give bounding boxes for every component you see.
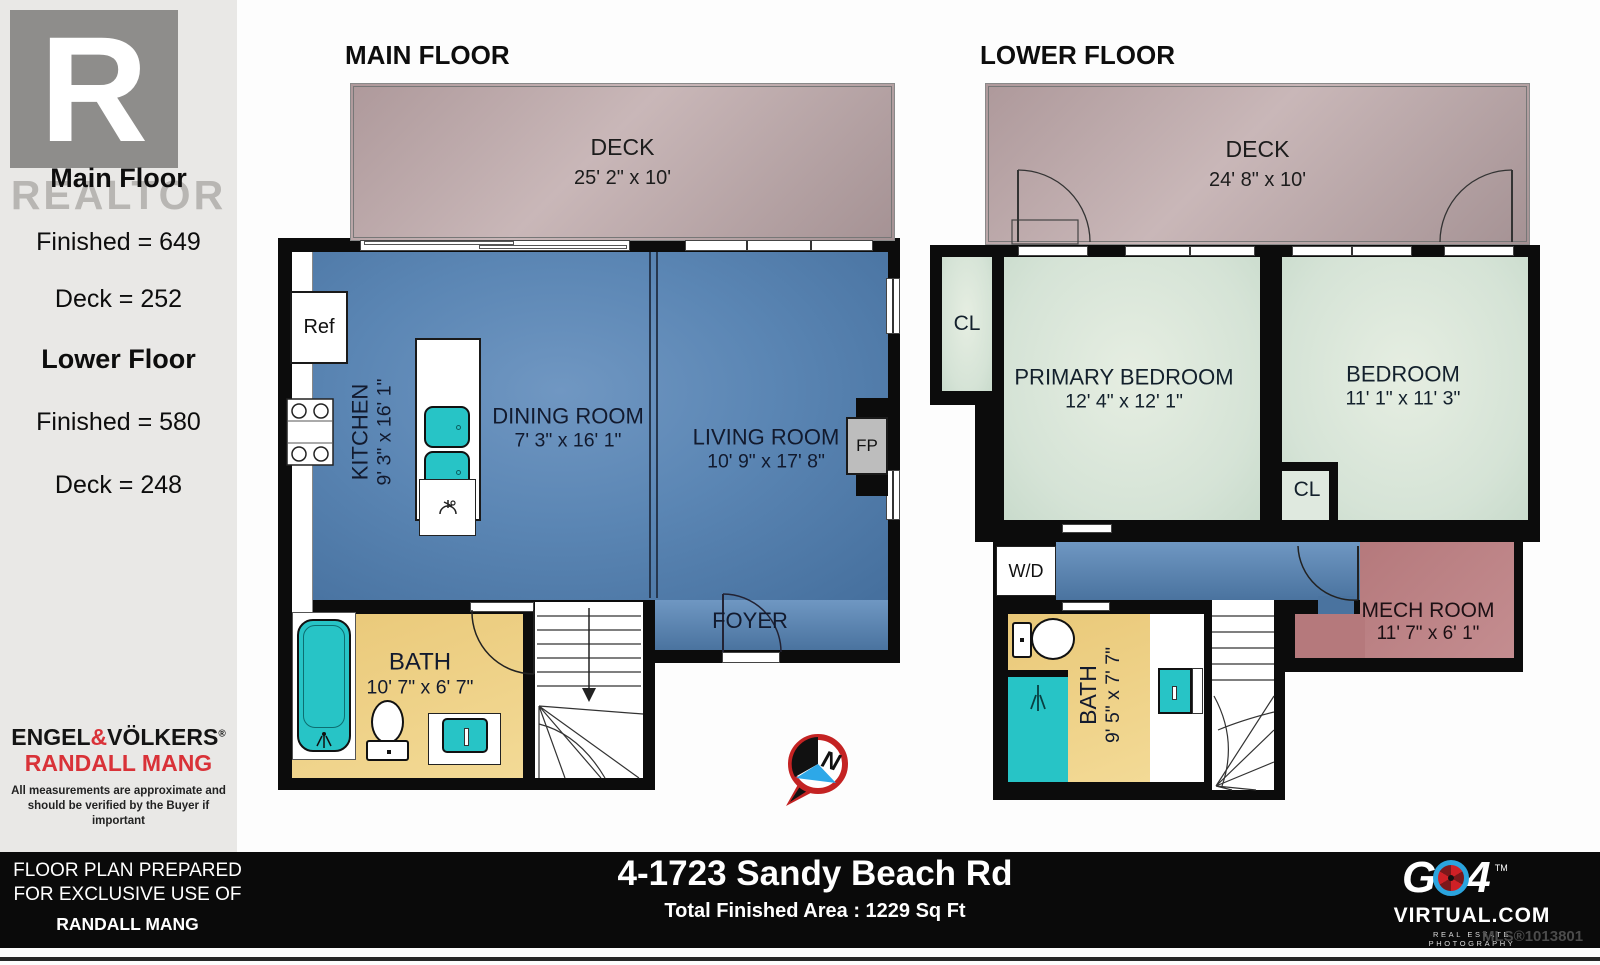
lower-door-gap-right bbox=[1444, 246, 1514, 256]
lower-bath-name: BATH bbox=[1075, 647, 1102, 743]
toilet-flush-dot bbox=[387, 750, 391, 754]
mech-door-swing bbox=[1296, 544, 1360, 602]
shower bbox=[1008, 670, 1068, 782]
main-bath-dims: 10' 7" x 6' 7" bbox=[367, 677, 474, 700]
lower-bath-label: BATH 9' 5" x 7' 7" bbox=[1075, 647, 1125, 743]
toilet-bowl bbox=[371, 700, 404, 744]
window-mullion bbox=[810, 241, 812, 250]
railing-line bbox=[649, 252, 651, 598]
toilet-tank-lower bbox=[1012, 622, 1032, 658]
main-deck: DECK 25' 2" x 10' bbox=[350, 83, 895, 241]
sliding-door bbox=[360, 240, 630, 251]
sidebar-main-finished: Finished = 649 bbox=[0, 228, 237, 257]
main-bath-name: BATH bbox=[367, 649, 474, 677]
living-window bbox=[886, 278, 900, 334]
main-bath-label: BATH 10' 7" x 6' 7" bbox=[367, 649, 474, 700]
window-mullion bbox=[1351, 247, 1353, 255]
camera-aperture-icon bbox=[1433, 860, 1469, 896]
realtor-logo-icon: R bbox=[10, 10, 178, 168]
kitchen-label: KITCHEN 9' 3" x 16' 1" bbox=[348, 379, 397, 486]
main-floor-title: MAIN FLOOR bbox=[345, 40, 510, 71]
brokerage-part2: VÖLKERS bbox=[107, 724, 218, 750]
sidebar-main-floor-title: Main Floor bbox=[0, 163, 237, 194]
lower-window bbox=[1292, 246, 1412, 256]
window-mullion bbox=[892, 279, 894, 333]
primary-bedroom-name: PRIMARY BEDROOM bbox=[1014, 365, 1233, 391]
sink-fixture bbox=[464, 728, 469, 746]
mech-room-name: MECH ROOM bbox=[1362, 599, 1495, 623]
living-room-dims: 10' 9" x 17' 8" bbox=[693, 451, 840, 474]
vanity-sink bbox=[442, 718, 488, 753]
fireplace-label: FP bbox=[856, 436, 878, 456]
sink-drain bbox=[456, 425, 461, 430]
go4-brand: G 4 TM bbox=[1402, 856, 1508, 900]
brokerage-part1: ENGEL bbox=[11, 724, 90, 750]
brokerage-name: ENGEL&VÖLKERS® bbox=[0, 724, 237, 751]
north-compass-icon: N bbox=[778, 726, 854, 808]
bottom-border bbox=[0, 957, 1600, 961]
main-deck-name: DECK bbox=[591, 134, 655, 161]
kitchen-dims: 9' 3" x 16' 1" bbox=[374, 379, 397, 486]
living-window bbox=[886, 470, 900, 520]
lower-deck-door-right bbox=[1434, 168, 1518, 246]
go4-letter-g: G bbox=[1402, 856, 1436, 900]
refrigerator: Ref bbox=[290, 291, 348, 364]
dining-room-name: DINING ROOM bbox=[492, 404, 644, 430]
mech-room-dims: 11' 7" x 6' 1" bbox=[1362, 623, 1495, 645]
go4-letter-4: 4 bbox=[1466, 856, 1490, 900]
bedroom-door-opening bbox=[1062, 524, 1112, 533]
floorplan-canvas: R REALTOR Main Floor Finished = 649 Deck… bbox=[0, 0, 1600, 965]
closet2-label: CL bbox=[1282, 478, 1332, 502]
realtor-logo-letter: R bbox=[40, 14, 148, 164]
lower-floor-title: LOWER FLOOR bbox=[980, 40, 1175, 71]
fireplace: FP bbox=[846, 417, 888, 475]
lower-deck-door-left bbox=[1012, 168, 1096, 246]
lower-deck-dims: 24' 8" x 10' bbox=[1209, 169, 1306, 192]
foyer-name: FOYER bbox=[712, 608, 788, 634]
bathtub-inner bbox=[303, 625, 345, 728]
sidebar-main-deck: Deck = 252 bbox=[0, 285, 237, 314]
window-mullion bbox=[892, 471, 894, 519]
trademark-label: TM bbox=[1495, 863, 1508, 873]
sidebar-lower-floor-title: Lower Floor bbox=[0, 344, 237, 375]
toilet-tank bbox=[366, 740, 409, 761]
prepared-line2: FOR EXCLUSIVE USE OF bbox=[10, 884, 245, 906]
mech-room-label: MECH ROOM 11' 7" x 6' 1" bbox=[1362, 599, 1495, 645]
faucet-icon bbox=[436, 496, 460, 520]
total-area: Total Finished Area : 1229 Sq Ft bbox=[240, 900, 1390, 923]
closet1-label: CL bbox=[942, 312, 992, 336]
kitchen-name: KITCHEN bbox=[348, 379, 374, 486]
window-mullion bbox=[1189, 247, 1191, 255]
sink-fixture bbox=[1172, 686, 1177, 700]
stove-icon bbox=[286, 398, 334, 466]
prepared-line1: FLOOR PLAN PREPARED bbox=[10, 860, 245, 882]
mls-number: MLS®1013801 bbox=[1482, 928, 1583, 945]
bedroom-name: BEDROOM bbox=[1346, 362, 1461, 388]
sidebar-lower-finished: Finished = 580 bbox=[0, 408, 237, 437]
primary-bedroom-dims: 12' 4" x 12' 1" bbox=[1014, 391, 1233, 414]
brokerage-reg-mark: ® bbox=[218, 728, 225, 739]
sidebar-lower-deck: Deck = 248 bbox=[0, 471, 237, 500]
disclaimer: All measurements are approximate and sho… bbox=[0, 784, 237, 829]
disclaimer-line2: should be verified by the Buyer if impor… bbox=[0, 799, 237, 829]
disclaimer-line1: All measurements are approximate and bbox=[0, 784, 237, 799]
main-deck-dims: 25' 2" x 10' bbox=[574, 167, 671, 190]
mech-room-ext bbox=[1295, 614, 1365, 658]
bedroom-dims: 11' 1" x 11' 3" bbox=[1346, 388, 1461, 411]
lower-door-gap-left bbox=[1018, 246, 1088, 256]
lower-window bbox=[1125, 246, 1255, 256]
brokerage-ampersand: & bbox=[91, 724, 108, 750]
main-window bbox=[685, 240, 873, 251]
lower-bath-dims: 9' 5" x 7' 7" bbox=[1102, 647, 1125, 743]
bedroom-label: BEDROOM 11' 1" x 11' 3" bbox=[1346, 362, 1461, 411]
vanity-counter bbox=[1192, 668, 1203, 714]
tub-faucet-icon bbox=[313, 730, 335, 748]
address: 4-1723 Sandy Beach Rd bbox=[240, 854, 1390, 894]
kitchen-sink bbox=[424, 406, 470, 448]
foyer-label: FOYER bbox=[712, 608, 788, 634]
bath-door-swing bbox=[470, 608, 538, 678]
dining-room-dims: 7' 3" x 16' 1" bbox=[492, 430, 644, 453]
sink-drain bbox=[456, 470, 461, 475]
lower-vanity-sink bbox=[1158, 668, 1192, 714]
main-stairs bbox=[535, 602, 643, 778]
virtual-com-label: VIRTUAL.COM bbox=[1392, 904, 1552, 928]
sidebar: R REALTOR Main Floor Finished = 649 Deck… bbox=[0, 0, 237, 852]
prepared-name: RANDALL MANG bbox=[10, 914, 245, 935]
sliding-door-panel bbox=[479, 245, 627, 249]
window-mullion bbox=[746, 241, 748, 250]
lower-stairs bbox=[1212, 600, 1274, 790]
lower-deck-name: DECK bbox=[1226, 136, 1290, 163]
toilet-flush-dot bbox=[1020, 638, 1024, 642]
brokerage-agent: RANDALL MANG bbox=[0, 750, 237, 777]
refrigerator-label: Ref bbox=[303, 316, 334, 339]
washer-dryer: W/D bbox=[996, 546, 1056, 596]
shower-head-icon bbox=[1026, 683, 1050, 711]
living-room-label: LIVING ROOM 10' 9" x 17' 8" bbox=[693, 425, 840, 474]
bathtub bbox=[297, 619, 351, 752]
primary-bedroom-label: PRIMARY BEDROOM 12' 4" x 12' 1" bbox=[1014, 365, 1233, 414]
dining-room-label: DINING ROOM 7' 3" x 16' 1" bbox=[492, 404, 644, 453]
dishwasher bbox=[419, 479, 476, 536]
lower-bath-door-opening bbox=[1062, 602, 1110, 611]
living-room-name: LIVING ROOM bbox=[693, 425, 840, 451]
railing-line bbox=[656, 252, 658, 598]
stairs-down-arrow bbox=[582, 688, 596, 702]
washer-dryer-label: W/D bbox=[1009, 561, 1044, 582]
toilet-bowl-lower bbox=[1031, 618, 1075, 660]
